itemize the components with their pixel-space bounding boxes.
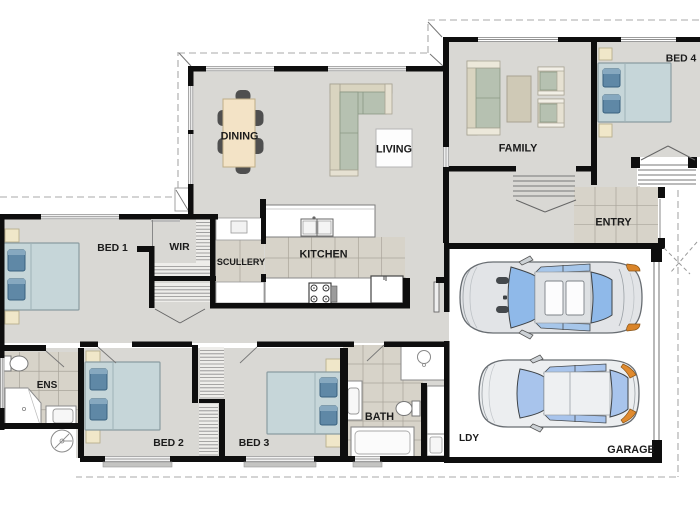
- svg-text:LDY: LDY: [459, 433, 479, 444]
- svg-text:BED 4: BED 4: [666, 54, 697, 65]
- svg-text:ENS: ENS: [37, 380, 58, 391]
- svg-text:ENTRY: ENTRY: [595, 217, 632, 229]
- svg-text:BED 1: BED 1: [97, 243, 128, 254]
- svg-text:FAMILY: FAMILY: [499, 143, 538, 155]
- svg-text:LIVING: LIVING: [376, 144, 412, 156]
- svg-text:BATH: BATH: [365, 411, 394, 423]
- svg-text:BED 2: BED 2: [153, 438, 184, 449]
- svg-text:KITCHEN: KITCHEN: [300, 249, 348, 261]
- svg-text:BED 3: BED 3: [239, 438, 270, 449]
- svg-text:WIR: WIR: [169, 242, 190, 253]
- svg-text:GARAGE: GARAGE: [607, 444, 654, 456]
- svg-text:DINING: DINING: [221, 131, 259, 143]
- svg-text:SCULLERY: SCULLERY: [217, 257, 265, 267]
